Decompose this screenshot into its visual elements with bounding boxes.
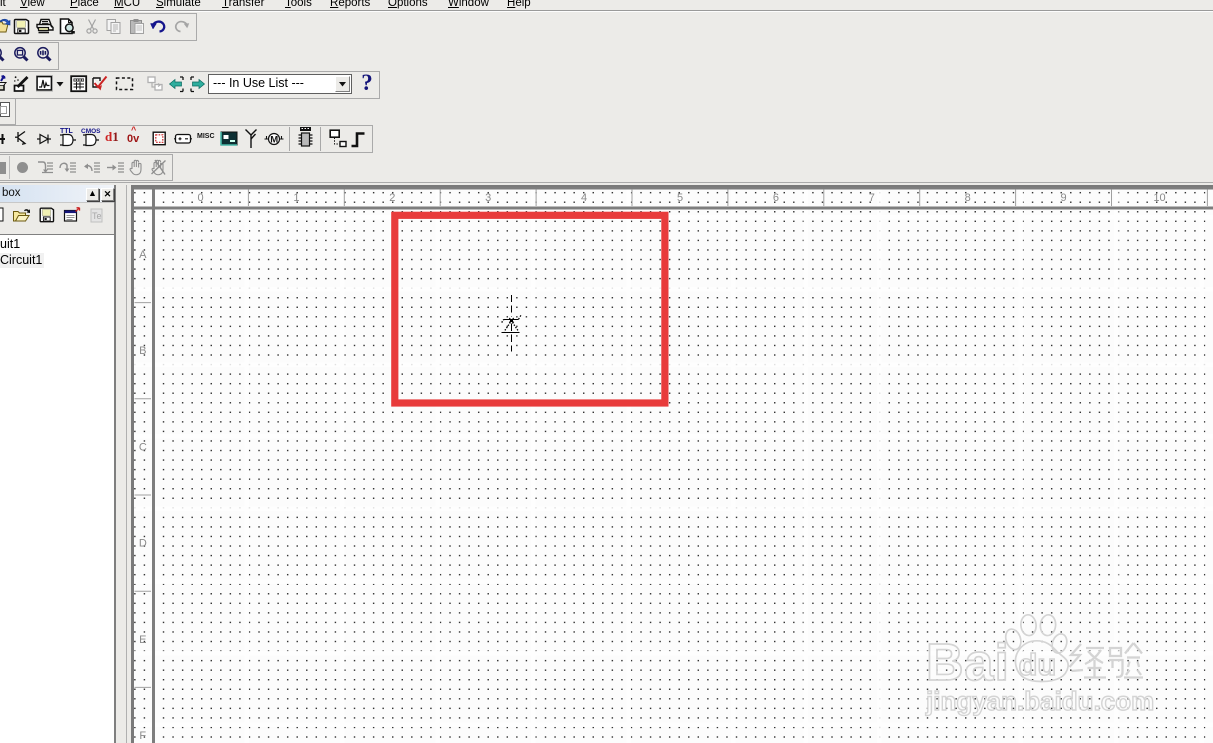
svg-text:0: 0 [197, 192, 203, 204]
svg-text:C: C [139, 441, 147, 453]
svg-text:Te: Te [92, 211, 102, 221]
svg-text:2: 2 [389, 192, 395, 204]
svg-text:F: F [139, 730, 146, 742]
svg-text:4: 4 [581, 192, 587, 204]
svg-text:Bai: Bai [926, 634, 1010, 692]
svg-text:B: B [139, 345, 146, 357]
svg-text:D: D [139, 538, 147, 550]
svg-text:10: 10 [1153, 192, 1165, 204]
svg-text:du: du [1019, 647, 1057, 682]
svg-text:M: M [270, 135, 278, 146]
svg-text:1: 1 [293, 192, 299, 204]
svg-text:6: 6 [773, 192, 779, 204]
svg-text:9: 9 [1061, 192, 1067, 204]
svg-text:8: 8 [965, 192, 971, 204]
svg-text:5: 5 [677, 192, 683, 204]
svg-text:jingyan.baidu.com: jingyan.baidu.com [925, 686, 1154, 716]
svg-text:7: 7 [869, 192, 875, 204]
svg-text:3: 3 [485, 192, 491, 204]
svg-text:A: A [139, 249, 147, 261]
svg-text:E: E [139, 634, 146, 646]
